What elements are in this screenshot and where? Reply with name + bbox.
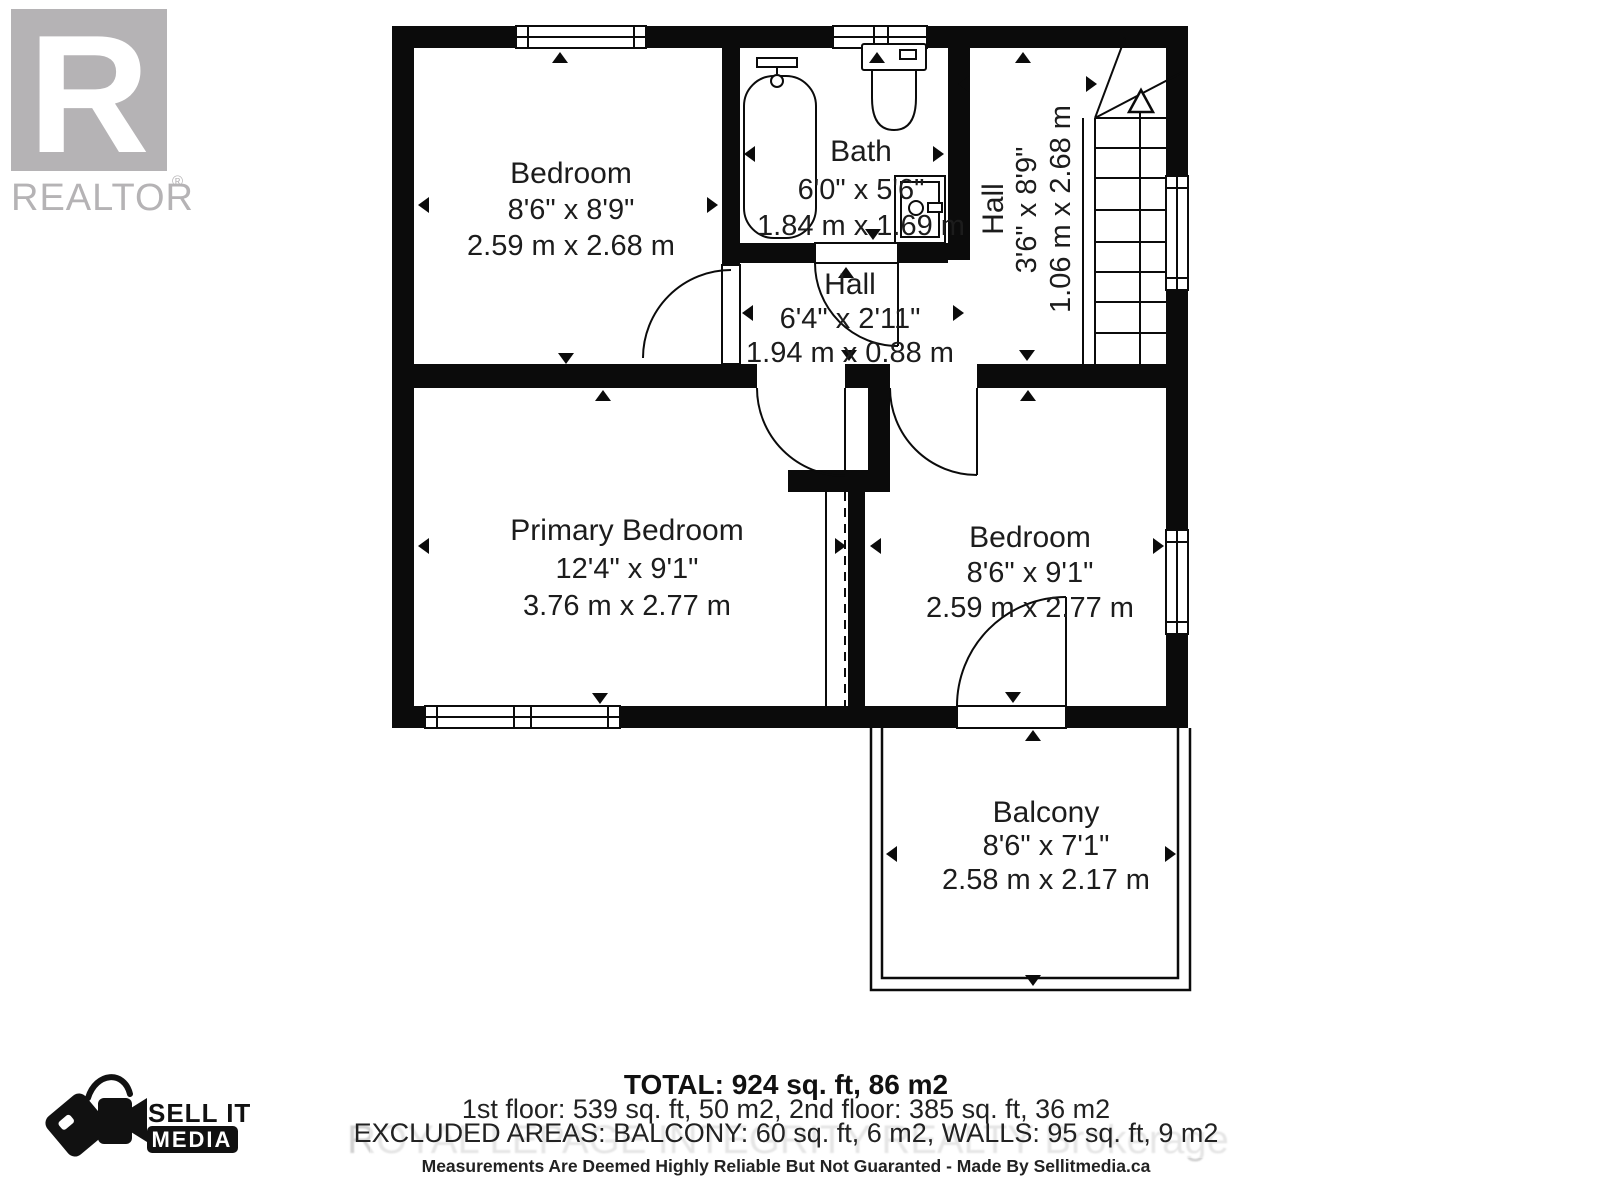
sellit-media-logo: SELL IT MEDIA (42, 1077, 252, 1160)
room-name: Bath (830, 135, 892, 168)
window-bedroom-top (516, 26, 646, 48)
room-name: Hall (977, 183, 1010, 235)
door-primary-bedroom (757, 388, 845, 476)
floor-plan-canvas: R REALTOR ® (0, 0, 1600, 1200)
wall-segment (414, 364, 757, 388)
room-label-bedroom-right: Bedroom 8'6" x 9'1" 2.59 m x 2.77 m (926, 521, 1134, 624)
room-label-balcony: Balcony 8'6" x 7'1" 2.58 m x 2.17 m (942, 796, 1150, 896)
room-dim-imperial: 8'6" x 7'1" (983, 830, 1110, 862)
wall-segment (848, 492, 865, 706)
wall-segment (868, 388, 890, 470)
room-label-hall-stairs: Hall 3'6" x 8'9" 1.06 m x 2.68 m (977, 105, 1077, 313)
toilet-icon (862, 44, 926, 130)
wall-segment (392, 26, 414, 728)
wall-segment (898, 243, 948, 263)
summary-block: ROYAL LEPAGE INTEGRITY REALTY Brokerage … (347, 1069, 1600, 1176)
room-dim-imperial: 8'6" x 9'1" (967, 557, 1094, 589)
room-name: Hall (824, 268, 876, 301)
wall-segment (1166, 290, 1188, 530)
door-bedroom-right (890, 388, 977, 475)
room-dim-metric: 3.76 m x 2.77 m (523, 590, 731, 622)
closet-sliding-door (824, 492, 848, 706)
wall-segment (1166, 26, 1188, 176)
wall-segment (788, 470, 890, 492)
window-bedroom-right (1166, 530, 1188, 634)
room-dim-metric: 1.94 m x 0.88 m (746, 337, 954, 369)
realtor-logo-r-icon: R (28, 0, 149, 188)
floor-plan-page: R REALTOR ® (0, 0, 1600, 1200)
room-label-primary-bedroom: Primary Bedroom 12'4" x 9'1" 3.76 m x 2.… (510, 514, 743, 622)
room-name: Bedroom (969, 521, 1091, 554)
room-label-bedroom-top-left: Bedroom 8'6" x 8'9" 2.59 m x 2.68 m (467, 157, 675, 262)
room-name: Primary Bedroom (510, 514, 743, 547)
room-dim-imperial: 3'6" x 8'9" (1011, 147, 1043, 274)
room-dim-metric: 2.59 m x 2.77 m (926, 592, 1134, 624)
room-name: Balcony (993, 796, 1100, 829)
disclaimer-text: Measurements Are Deemed Highly Reliable … (422, 1156, 1151, 1176)
camera-tag-icon (42, 1077, 147, 1160)
stair-winder-line (1095, 38, 1125, 118)
realtor-logo: R REALTOR ® (11, 0, 194, 219)
window-primary-bottom (425, 706, 620, 728)
room-dim-metric: 1.84 m x 1.69 m (757, 210, 965, 242)
wall-segment (722, 48, 740, 265)
wall-segment (1066, 706, 1188, 728)
room-labels: Bedroom 8'6" x 8'9" 2.59 m x 2.68 m Bath… (467, 105, 1150, 896)
room-dim-imperial: 8'6" x 8'9" (508, 194, 635, 226)
room-dim-metric: 2.58 m x 2.17 m (942, 864, 1150, 896)
realtor-wordmark: REALTOR (11, 177, 194, 219)
wall-segment (927, 26, 1188, 48)
stairs-up-arrow-icon (1129, 90, 1153, 112)
window-stair-hall-right (1166, 176, 1188, 290)
room-dim-metric: 1.06 m x 2.68 m (1045, 105, 1077, 313)
wall-segment (646, 26, 833, 48)
wall-segment (620, 706, 957, 728)
room-dim-imperial: 12'4" x 9'1" (556, 553, 699, 585)
room-dim-metric: 2.59 m x 2.68 m (467, 230, 675, 262)
registered-trademark-icon: ® (172, 173, 183, 190)
wall-segment (392, 706, 425, 728)
wall-segment (977, 364, 1166, 388)
room-name: Bedroom (510, 157, 632, 190)
door-bedroom-top-left (643, 265, 740, 364)
wall-segment (740, 243, 815, 263)
room-dim-imperial: 6'0" x 5'6" (798, 174, 925, 206)
balcony-door-opening (957, 706, 1066, 728)
sellit-wordmark-line1: SELL IT (148, 1098, 251, 1128)
room-label-hall-small: Hall 6'4" x 2'11" 1.94 m x 0.88 m (746, 268, 954, 369)
room-dim-imperial: 6'4" x 2'11" (780, 303, 921, 335)
excluded-areas-text: EXCLUDED AREAS: BALCONY: 60 sq. ft, 6 m2… (354, 1118, 1219, 1148)
sellit-wordmark-line2: MEDIA (152, 1127, 233, 1152)
